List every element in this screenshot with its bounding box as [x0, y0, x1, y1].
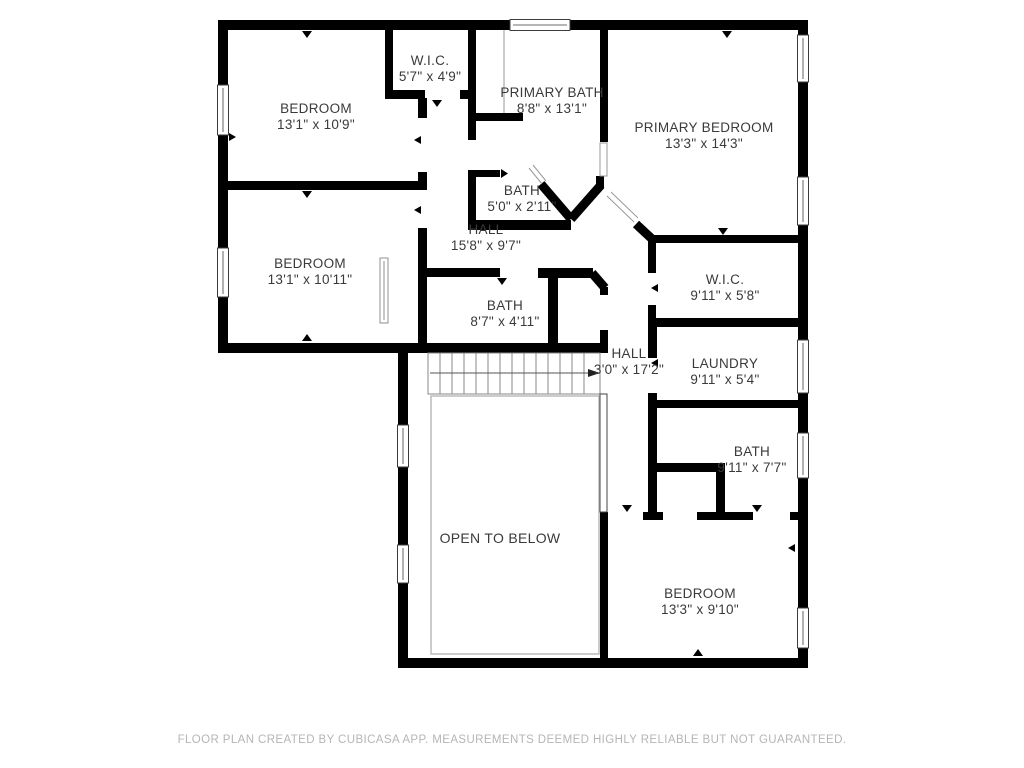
- room-dims: 9'11" x 5'4": [690, 372, 759, 388]
- room-dims: 8'8" x 13'1": [500, 101, 603, 117]
- room-dims: 13'1" x 10'11": [268, 272, 353, 288]
- room-dims: 5'0" x 2'11": [487, 199, 556, 215]
- room-name: HALL: [451, 222, 521, 238]
- room-label-wic-right: W.I.C. 9'11" x 5'8": [690, 272, 759, 304]
- window-icon: [798, 340, 809, 393]
- window-icon: [798, 177, 809, 225]
- room-dims: 9'11" x 5'8": [690, 288, 759, 304]
- room-name: OPEN TO BELOW: [440, 530, 561, 546]
- room-name: BEDROOM: [661, 586, 739, 602]
- stairs-icon: [428, 353, 600, 394]
- room-dims: 3'0" x 17'2": [594, 362, 664, 378]
- room-name: W.I.C.: [690, 272, 759, 288]
- room-name: LAUNDRY: [690, 356, 759, 372]
- room-dims: 13'1" x 10'9": [277, 117, 355, 133]
- room-name: BATH: [487, 183, 556, 199]
- room-name: PRIMARY BATH: [500, 85, 603, 101]
- room-name: BATH: [717, 444, 786, 460]
- room-name: W.I.C.: [399, 53, 461, 69]
- room-label-bedroom-mid-left: BEDROOM 13'1" x 10'11": [268, 256, 353, 288]
- room-dims: 15'8" x 9'7": [451, 238, 521, 254]
- room-name: PRIMARY BEDROOM: [634, 120, 773, 136]
- room-label-hall-upper: HALL 15'8" x 9'7": [451, 222, 521, 254]
- window-icon: [798, 433, 809, 478]
- room-dims: 5'7" x 4'9": [399, 69, 461, 85]
- room-dims: 8'7" x 4'11": [470, 314, 539, 330]
- room-label-laundry: LAUNDRY 9'11" x 5'4": [690, 356, 759, 388]
- floor-plan-page: BEDROOM 13'1" x 10'9" W.I.C. 5'7" x 4'9"…: [0, 0, 1024, 768]
- window-icon: [798, 35, 809, 82]
- room-dims: 13'3" x 14'3": [634, 136, 773, 152]
- room-name: BEDROOM: [277, 101, 355, 117]
- window-icon: [398, 425, 409, 467]
- room-label-bedroom-bottom: BEDROOM 13'3" x 9'10": [661, 586, 739, 618]
- window-icon: [398, 545, 409, 583]
- window-icon: [510, 20, 570, 31]
- room-label-open-to-below: OPEN TO BELOW: [440, 530, 561, 546]
- room-dims: 9'11" x 7'7": [717, 460, 786, 476]
- room-name: BEDROOM: [268, 256, 353, 272]
- room-label-bath-lower-right: BATH 9'11" x 7'7": [717, 444, 786, 476]
- room-label-primary-bath: PRIMARY BATH 8'8" x 13'1": [500, 85, 603, 117]
- railing-icon: [600, 394, 607, 512]
- open-to-below-outline: [431, 396, 599, 654]
- room-label-bedroom-top-left: BEDROOM 13'1" x 10'9": [277, 101, 355, 133]
- room-label-wic-top: W.I.C. 5'7" x 4'9": [399, 53, 461, 85]
- window-icon: [798, 608, 809, 648]
- window-icon: [218, 85, 229, 135]
- room-dims: 13'3" x 9'10": [661, 602, 739, 618]
- footer-disclaimer: FLOOR PLAN CREATED BY CUBICASA APP. MEAS…: [0, 734, 1024, 746]
- window-icon: [218, 248, 229, 297]
- room-label-primary-bedroom: PRIMARY BEDROOM 13'3" x 14'3": [634, 120, 773, 152]
- room-name: HALL: [594, 346, 664, 362]
- room-label-hall-narrow: HALL 3'0" x 17'2": [594, 346, 664, 378]
- room-label-bath-small: BATH 5'0" x 2'11": [487, 183, 556, 215]
- room-label-bath-mid: BATH 8'7" x 4'11": [470, 298, 539, 330]
- room-name: BATH: [470, 298, 539, 314]
